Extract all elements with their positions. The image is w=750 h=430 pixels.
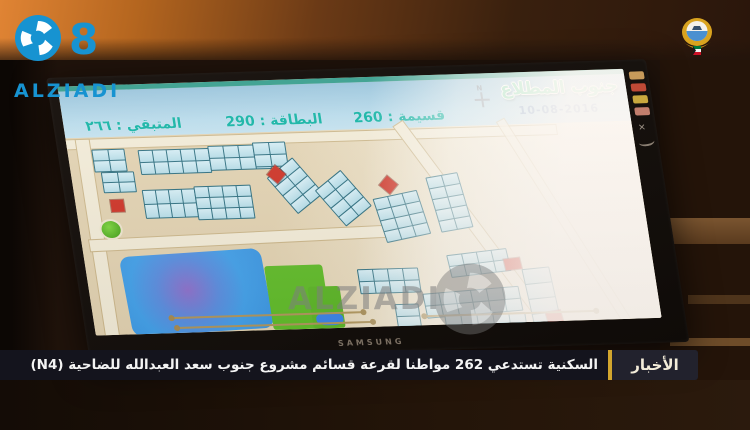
compass-icon: N (473, 92, 490, 107)
plot-cell (110, 161, 127, 171)
bezel-sticker (632, 95, 648, 103)
logo-eight: 8 (69, 16, 98, 64)
ticker-headline: السكنية تستدعي 262 مواطنا لقرعة قسائم مش… (10, 350, 598, 380)
landmark-red (110, 200, 125, 212)
news-ticker: السكنية تستدعي 262 مواطنا لقرعة قسائم مش… (0, 350, 698, 380)
plot-cell (119, 182, 135, 191)
plot-cell (143, 191, 157, 204)
plot-cell (208, 146, 224, 157)
plot-cell (238, 197, 253, 207)
ticker-section-label: الأخبار (612, 350, 698, 380)
plot-cell (439, 219, 456, 231)
plot-block (193, 185, 255, 221)
plot-cell (141, 163, 156, 174)
plot-cell (509, 313, 526, 324)
remaining-counter: المتبقي : ٢٦٦ (84, 116, 183, 135)
plot-block (315, 170, 372, 227)
plot-cell (223, 146, 239, 157)
wood-shelf (664, 218, 750, 244)
plot-cell (169, 190, 183, 203)
plot-cell (198, 209, 213, 219)
q8-aperture-icon (14, 14, 62, 62)
plot-cell (183, 161, 198, 172)
plot-cell (253, 143, 270, 154)
plot-cell (255, 155, 272, 166)
plot-cell (171, 204, 185, 217)
plot-cell (212, 208, 227, 218)
plot-cell (240, 208, 255, 218)
plot-cell (236, 186, 251, 196)
bezel-sticker (634, 107, 650, 115)
plot-cell (167, 150, 182, 161)
plot-cell (505, 299, 522, 311)
plot-cell (108, 150, 125, 160)
draw-date: 10-08-2016 (518, 102, 600, 117)
plot-cell (269, 143, 286, 154)
plot-cell (222, 186, 237, 196)
watermark-text: ALZIADI (288, 281, 441, 317)
landmark-red (379, 176, 397, 194)
plot-cell (523, 267, 552, 283)
plot-cell (210, 197, 225, 207)
plot-cell (413, 223, 430, 236)
x-mark-icon: ✕ (638, 123, 647, 133)
card-counter: البطاقة : 290 (224, 111, 323, 130)
news-frame: المتبقي : ٢٦٦ البطاقة : 290 قسيمة : 260 … (0, 0, 750, 430)
bezel-sticker (629, 71, 645, 79)
plot-cell (195, 187, 210, 197)
swoosh-mark (637, 136, 655, 148)
plot-cell (118, 172, 134, 181)
plot-cell (224, 197, 239, 207)
plot-cell (181, 149, 196, 160)
plot-cell (158, 204, 172, 217)
kuwait-emblem (679, 16, 715, 64)
plot-cell (477, 251, 493, 263)
lake-area (119, 248, 275, 336)
bezel-sticker (630, 83, 646, 91)
plot-cell (526, 282, 555, 298)
plot-cell (169, 162, 184, 173)
plot-cell (210, 158, 226, 169)
plot-cell (103, 183, 119, 192)
plot-cell (102, 173, 118, 182)
plot-cell (226, 208, 241, 218)
project-title: جنوب المطلاع (499, 76, 620, 100)
channel-name: ALZIADI (14, 80, 144, 102)
plot-cell (94, 161, 111, 171)
road (89, 226, 390, 252)
plot-cell (145, 205, 159, 218)
plot-cell (153, 150, 168, 161)
plot-block (101, 171, 137, 193)
compass-north-label: N (476, 84, 483, 92)
watermark: ALZIADI (288, 262, 507, 336)
plot-cell (208, 187, 223, 197)
plot-cell (92, 150, 109, 160)
plot-cell (139, 151, 154, 162)
plot-block (142, 188, 199, 219)
plot-cell (156, 190, 170, 203)
plot-cell (196, 198, 211, 208)
channel-logo: 8 ALZIADI (14, 14, 144, 102)
plot-cell (225, 158, 241, 169)
plot-cell (155, 162, 170, 173)
plot-block (425, 172, 473, 233)
watermark-aperture-icon (433, 262, 507, 336)
room-floor (0, 380, 750, 430)
plot-block (91, 149, 128, 173)
plot-block (138, 148, 213, 175)
plot-cell (455, 216, 472, 228)
wood-trim (688, 295, 750, 304)
